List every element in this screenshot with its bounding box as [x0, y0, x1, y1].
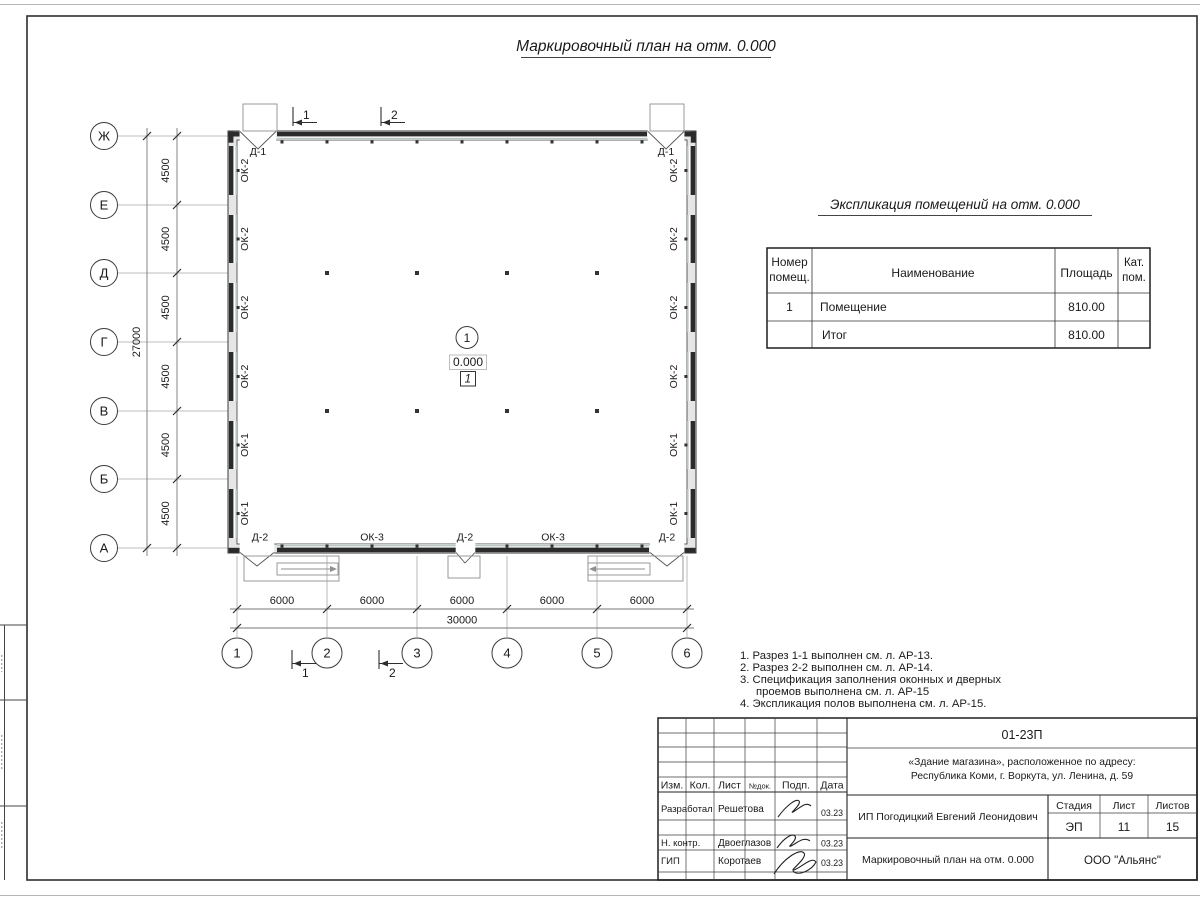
door-bottom-center: [456, 543, 476, 563]
cell-area: 810.00: [1068, 328, 1105, 342]
note-line: 3. Спецификация заполнения оконных и две…: [740, 674, 1001, 686]
window-label: ОК-1: [668, 433, 680, 457]
door-label: Д-2: [659, 532, 676, 544]
col-header: Площадь: [1060, 266, 1112, 280]
window-label: ОК-2: [668, 365, 680, 389]
tb-date: 03.23: [821, 839, 843, 849]
axis-label: Д: [100, 266, 109, 281]
tb-address-line2: Республика Коми, г. Воркута, ул. Ленина,…: [911, 770, 1133, 782]
col-header: пом.: [1122, 272, 1146, 284]
note-line: 4. Экспликация полов выполнена см. л. АР…: [740, 698, 986, 710]
window-right-3: [684, 283, 695, 332]
tb-role: Разработал: [661, 804, 713, 815]
window-label: ОК-2: [668, 296, 680, 320]
note-line: 1. Разрез 1-1 выполнен см. л. АР-13.: [740, 650, 933, 662]
explication-title: Экспликация помещений на отм. 0.000: [830, 197, 1080, 212]
room-number-tag: 1: [465, 374, 471, 386]
porch-top-right: [650, 104, 684, 131]
porch-bottom-center: [448, 556, 480, 578]
window-right-5: [684, 421, 695, 469]
axis-grid: Ж Е Д Г В Б А 1 2 3 4 5 6: [91, 123, 703, 669]
tb-col-kol: Кол.: [690, 780, 711, 792]
explication: Экспликация помещений на отм. 0.000 Номе…: [767, 197, 1150, 348]
axis-label: 6: [683, 646, 690, 661]
note-line: проемов выполнена см. л. АР-15: [756, 686, 929, 698]
window-label: ОК-1: [239, 502, 251, 526]
window-band-bottom-left: [277, 544, 456, 553]
tb-col-list: Лист: [718, 780, 741, 792]
window-left-1: [228, 146, 239, 195]
window-left-6: [228, 489, 239, 538]
tb-sheet-label: Лист: [1113, 800, 1136, 812]
section-number: 2: [391, 108, 398, 122]
section-mark-2-top: 2: [381, 107, 405, 126]
dim-total-label: 27000: [131, 327, 143, 358]
door-bottom-right: [650, 543, 685, 566]
col-header: Наименование: [891, 266, 975, 280]
tb-company: ООО "Альянс": [1084, 855, 1161, 867]
tb-client: ИП Погодицкий Евгений Леонидович: [858, 811, 1037, 823]
tb-name: Решетова: [718, 804, 764, 815]
axis-label: 2: [323, 646, 330, 661]
door-label: Д-2: [457, 532, 474, 544]
section-number: 1: [302, 666, 309, 680]
window-label: ОК-2: [239, 365, 251, 389]
wall-column-dots: [281, 141, 644, 548]
cell-area: 810.00: [1068, 300, 1105, 314]
porch-bottom-left: [244, 556, 339, 581]
dim-label: 6000: [450, 595, 474, 607]
axis-label: 4: [503, 646, 510, 661]
signature: [777, 835, 810, 848]
tb-doc-title: Маркировочный план на отм. 0.000: [862, 854, 1034, 866]
window-right-6: [684, 489, 695, 538]
interior-columns: [325, 271, 599, 413]
cell-name: Итог: [822, 328, 848, 342]
window-label: ОК-1: [239, 433, 251, 457]
tb-date: 03.23: [821, 808, 843, 818]
tb-col-izm: Изм.: [661, 780, 684, 792]
tb-sheets-value: 15: [1166, 820, 1180, 834]
window-left-4: [228, 352, 239, 401]
room-marker: 1 0.000 1: [450, 327, 487, 387]
room-axis-ref: 1: [464, 331, 471, 345]
axis-label: 3: [413, 646, 420, 661]
section-number: 1: [303, 108, 310, 122]
note-line: 2. Разрез 2-2 выполнен см. л. АР-14.: [740, 662, 933, 674]
door-label: Д-2: [252, 532, 269, 544]
window-label: ОК-2: [668, 159, 680, 183]
window-label: ОК-2: [239, 227, 251, 251]
tb-role: Н. контр.: [661, 838, 700, 849]
page-title: Маркировочный план на отм. 0.000: [516, 38, 776, 55]
left-stamp: [0, 625, 27, 880]
tb-role: ГИП: [661, 856, 680, 867]
door-label: Д-1: [658, 146, 675, 158]
dim-label: 4500: [160, 364, 172, 388]
tb-stage-value: ЭП: [1065, 820, 1082, 834]
axis-label: 1: [233, 646, 240, 661]
axis-label: Б: [100, 472, 109, 487]
tb-name: Двоеглазов: [718, 838, 771, 849]
window-left-3: [228, 283, 239, 332]
porch-bottom-right: [588, 556, 683, 581]
tb-doc-code: 01-23П: [1002, 728, 1043, 742]
ramp-arrow-right: [330, 566, 337, 572]
axis-label: В: [100, 404, 109, 419]
dim-label: 6000: [270, 595, 294, 607]
axis-bubbles-rows: Ж Е Д Г В Б А: [91, 123, 118, 562]
tb-col-ndok: №док.: [749, 782, 771, 791]
dim-total-label: 30000: [447, 615, 478, 627]
window-band-top: [277, 131, 647, 140]
table-row: Итог 810.00: [822, 328, 1105, 342]
window-label: ОК-1: [668, 502, 680, 526]
col-header: помещ.: [769, 270, 810, 284]
title-block: Изм. Кол. Лист №док. Подп. Дата Разработ…: [658, 718, 1197, 880]
dim-label: 4500: [160, 227, 172, 251]
window-label: ОК-2: [668, 227, 680, 251]
signature: [774, 852, 816, 874]
window-label: ОК-2: [239, 296, 251, 320]
signature: [778, 800, 811, 817]
window-left-5: [228, 421, 239, 469]
walls: Д-1 Д-1 ОК-2 ОК-2 ОК-2 ОК-2 ОК-1 ОК-1 ОК…: [228, 104, 696, 581]
window-label: ОК-2: [239, 159, 251, 183]
window-right-1: [684, 146, 695, 195]
cell-num: 1: [786, 300, 793, 314]
axis-label: А: [100, 541, 109, 556]
window-right-2: [684, 215, 695, 263]
cell-name: Помещение: [820, 300, 887, 314]
window-label: ОК-3: [541, 532, 565, 544]
table-row: 1 Помещение 810.00: [786, 300, 1105, 314]
dim-label: 4500: [160, 295, 172, 319]
dim-label: 4500: [160, 158, 172, 182]
window-label: ОК-3: [360, 532, 384, 544]
section-mark-1-top: 1: [293, 107, 317, 126]
window-band-bottom-right: [475, 544, 649, 553]
axis-label: Ж: [98, 129, 110, 144]
dim-label: 4500: [160, 433, 172, 457]
tb-address-line1: «Здание магазина», расположенное по адре…: [908, 757, 1135, 768]
window-right-4: [684, 352, 695, 401]
col-header: Номер: [771, 255, 808, 269]
drawing-canvas: Маркировочный план на отм. 0.000 Ж Е Д Г…: [0, 0, 1200, 900]
col-header: Кат.: [1124, 257, 1144, 269]
dim-label: 6000: [630, 595, 654, 607]
ramp-arrow-left: [589, 566, 596, 572]
door-label: Д-1: [250, 146, 267, 158]
window-left-2: [228, 215, 239, 263]
drawing-sheet: Маркировочный план на отм. 0.000 Ж Е Д Г…: [0, 0, 1200, 900]
tb-sheet-value: 11: [1118, 820, 1131, 834]
porch-top-left: [243, 104, 277, 131]
dim-label: 6000: [540, 595, 564, 607]
tb-stage-label: Стадия: [1056, 800, 1092, 812]
tb-name: Коротаев: [718, 856, 761, 867]
axis-label: 5: [593, 646, 600, 661]
notes: 1. Разрез 1-1 выполнен см. л. АР-13. 2. …: [740, 650, 1001, 710]
section-marks: 1 2 1 2: [292, 107, 405, 680]
section-mark-2-bottom: 2: [379, 650, 403, 680]
section-number: 2: [389, 666, 396, 680]
dim-label: 4500: [160, 501, 172, 525]
tb-col-podp: Подп.: [782, 780, 810, 792]
tb-col-data: Дата: [820, 780, 843, 792]
axis-label: Г: [100, 335, 107, 350]
tb-sheets-label: Листов: [1155, 800, 1190, 812]
dim-label: 6000: [360, 595, 384, 607]
tb-date: 03.23: [821, 858, 843, 868]
axis-label: Е: [100, 198, 109, 213]
elevation-mark: 0.000: [453, 355, 483, 369]
door-bottom-left: [240, 543, 275, 566]
plan-title: Маркировочный план на отм. 0.000: [516, 38, 776, 58]
